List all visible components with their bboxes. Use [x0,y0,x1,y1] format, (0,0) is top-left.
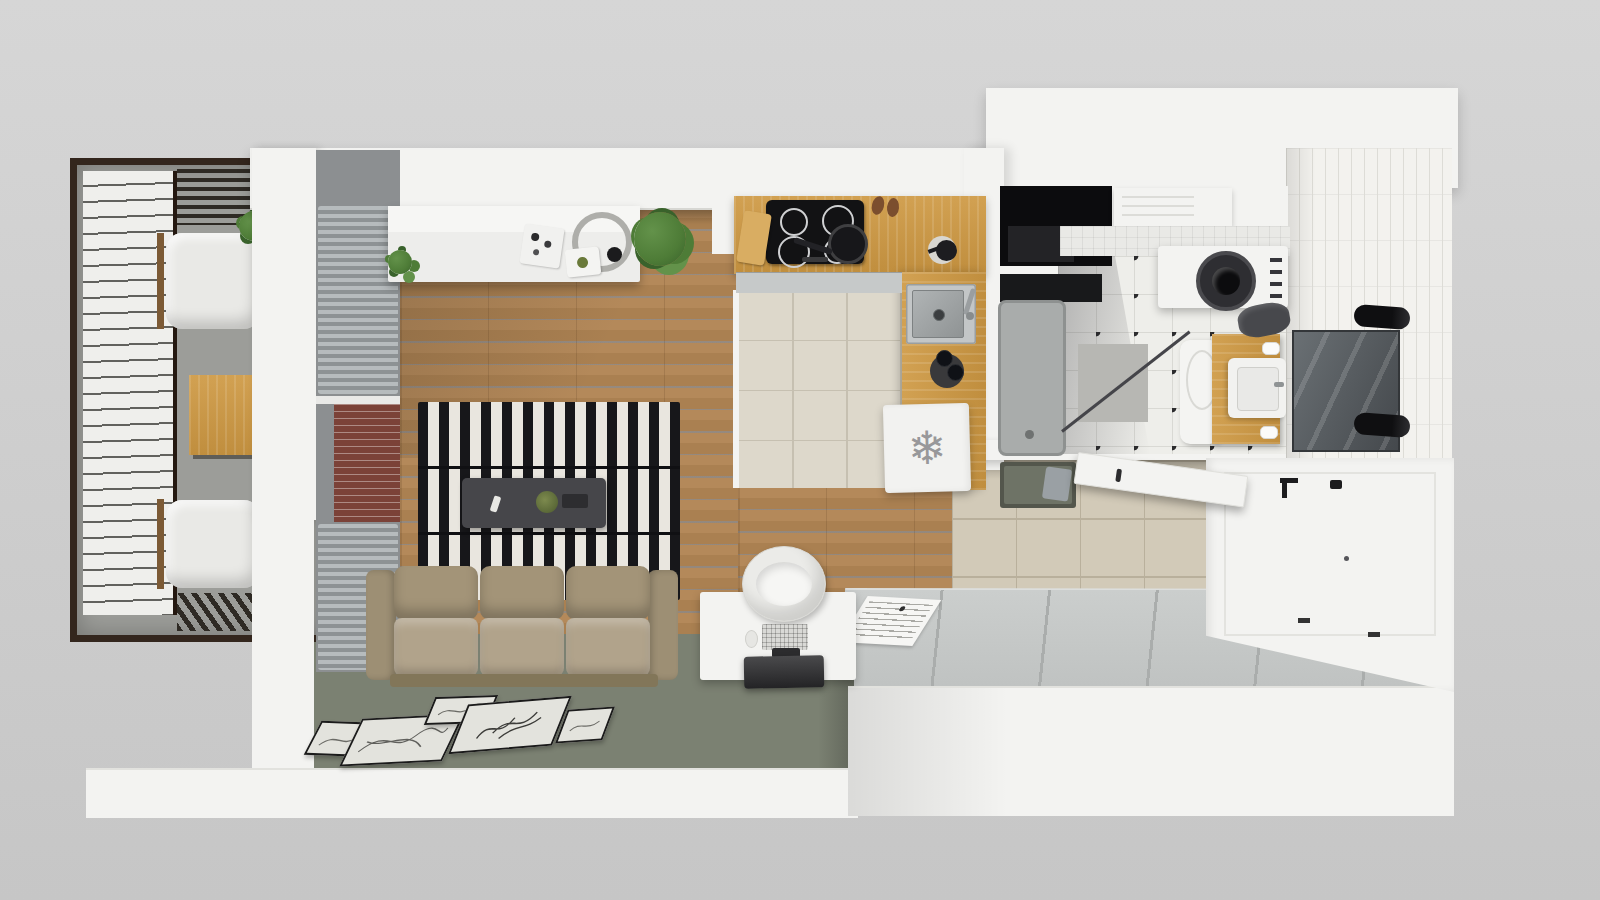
rug-band-line [418,532,680,535]
bottom-wall [86,768,858,818]
freezer-fridge: ❄ [883,403,971,493]
washer-drum-glass [1212,267,1240,295]
sofa-seat-cushion [566,618,650,676]
chair-wood-rail [157,499,164,589]
candle [531,232,540,241]
small-plant [388,250,412,274]
shower-dark-wall [1000,274,1102,302]
rug-band-line [418,466,680,469]
wall-sconce-bottom [1353,412,1410,438]
cooktop-controls [802,257,828,262]
decor-tray [519,223,564,268]
red-curtain [334,404,400,522]
blind-lines [334,404,400,522]
sofa-seat-cushion [480,618,564,676]
wine-bottle [947,364,964,381]
desk-chair [742,546,826,622]
chair-wood-rail [157,233,164,329]
table-decor [562,494,588,508]
entry-bench [1000,462,1076,508]
computer-monitor [744,655,825,688]
sideboard [388,206,640,282]
left-pillar-wall [252,148,316,520]
bench-pillow [1042,466,1072,501]
remote [490,495,502,512]
toilet-roll [1260,426,1278,439]
sofa [366,566,678,690]
frying-pan [828,224,868,264]
coffee-pot [936,240,957,261]
vanity-sink [1228,358,1286,418]
washer-drum [1196,251,1256,311]
window-sill [316,396,400,404]
kitchen-threshold [733,290,739,488]
washing-machine [1158,246,1288,308]
mouse [745,630,758,648]
platform-front-wall [848,686,1454,816]
wardrobe-handle [1330,480,1342,489]
sink-basin [912,290,964,338]
snowflake-icon: ❄ [907,425,947,472]
coffee-table [462,478,606,528]
moss-ball [577,257,589,269]
platform-front-shade [848,688,1008,816]
sofa-seat-cushion [394,618,478,676]
candle [533,249,540,256]
wardrobe-latch [1368,632,1380,637]
counter-edge-band [736,272,902,293]
door-handle [1115,469,1122,483]
candle [544,240,552,248]
kitchen-cabinet-end [712,196,736,254]
left-lower-wall [252,520,314,772]
shower-drain [1025,430,1034,439]
burner-ring [780,208,808,236]
sofa-back-cushion [480,566,564,620]
towel-shelf [1114,188,1232,226]
table-plant [536,491,558,513]
chair-seat-inner [756,562,812,606]
shower-tray [998,300,1066,456]
sink-faucet [1274,382,1284,387]
apartment-floor-plan: ❄ [0,0,1600,900]
wall-sconce-top [1353,304,1410,330]
chair-cushion [166,233,260,329]
toilet-roll [1262,342,1280,355]
wardrobe-handle-hook [1282,483,1287,498]
radiator-top [318,206,398,394]
chair-cushion [166,500,260,588]
wardrobe-panel-groove [1224,472,1436,636]
kitchen-sink [906,284,976,344]
wardrobe-latch [1298,618,1310,623]
sink-basin [1237,367,1279,411]
washer-controls [1270,258,1282,298]
decor-dish [565,246,602,277]
large-plant [634,212,686,266]
sofa-armrest [366,570,396,680]
sofa-base [390,674,658,687]
lamp-shade-dark [607,247,622,262]
keyboard [762,624,808,650]
kitchen-tile-floor [738,290,902,488]
sofa-back-cushion [394,566,478,620]
sink-drain [933,309,945,321]
folded-towels [1122,196,1194,218]
wardrobe-knob [1344,556,1349,561]
sofa-armrest [648,570,678,680]
faucet-base [966,312,974,320]
sofa-back-cushion [566,566,650,620]
